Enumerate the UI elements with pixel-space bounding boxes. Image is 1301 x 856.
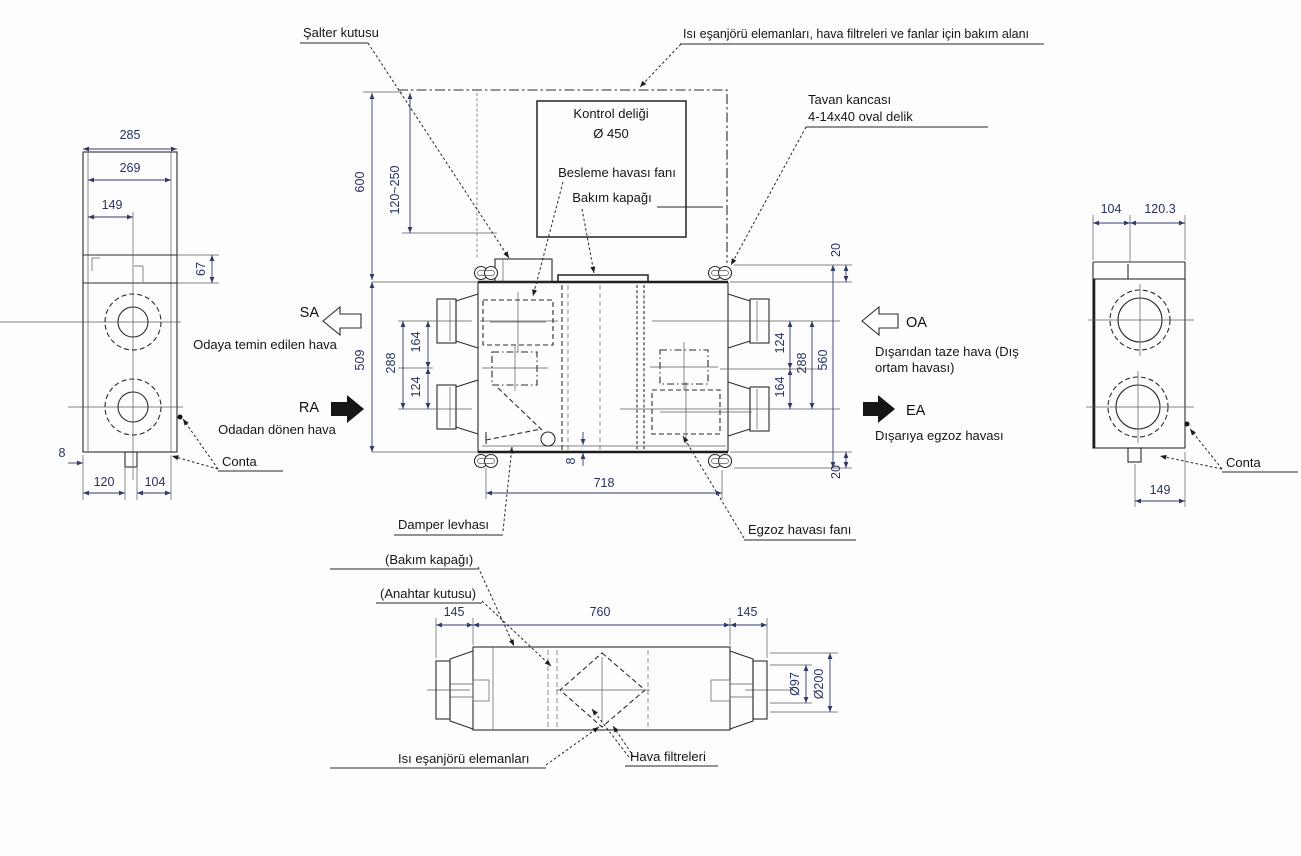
plan-dimensions: 600 120~250 509 288 164 124 20 20 124 bbox=[353, 92, 852, 499]
bottom-tab bbox=[125, 452, 137, 467]
right-view-dimensions: 104 120.3 149 bbox=[1093, 202, 1185, 507]
conta-label-right: Conta bbox=[1226, 455, 1261, 470]
ra-code: RA bbox=[299, 400, 319, 416]
left-view-centerlines bbox=[0, 212, 183, 480]
right-view-ports bbox=[1086, 284, 1194, 443]
oa-description-line1: Dışarıdan taze hava (Dış bbox=[875, 344, 1019, 359]
sa-code: SA bbox=[300, 305, 320, 321]
bottom-centerlines bbox=[427, 657, 793, 723]
left-view-dimensions: 285 269 149 67 8 120 104 bbox=[59, 128, 212, 500]
dim-149: 149 bbox=[102, 198, 123, 212]
damper-plate-line bbox=[498, 388, 542, 430]
dim-164-right: 164 bbox=[773, 377, 787, 398]
switch-box-paren-label: (Anahtar kutusu) bbox=[380, 586, 476, 601]
dim-269: 269 bbox=[120, 161, 141, 175]
exhaust-fan-label: Egzoz havası fanı bbox=[748, 522, 851, 537]
dim-145-left: 145 bbox=[444, 605, 465, 619]
plan-internal-parts bbox=[482, 292, 752, 446]
dim-288-right: 288 bbox=[795, 353, 809, 374]
dim-d200: Ø200 bbox=[812, 669, 826, 700]
dim-120-250: 120~250 bbox=[388, 165, 402, 214]
bottom-tab-right bbox=[1128, 448, 1141, 462]
dim-124-left: 124 bbox=[409, 377, 423, 398]
left-side-view: 285 269 149 67 8 120 104 Conta bbox=[0, 128, 283, 500]
dim-d97: Ø97 bbox=[788, 672, 802, 696]
bottom-view: 145 760 145 Ø97 Ø200 (Bakım kapağı) (Ana… bbox=[330, 552, 838, 768]
ra-description: Odadan dönen hava bbox=[218, 422, 337, 437]
dim-104-right-view: 104 bbox=[1101, 202, 1122, 216]
dim-149-right-view: 149 bbox=[1150, 483, 1171, 497]
hook-top-left bbox=[475, 267, 498, 280]
dim-560: 560 bbox=[816, 350, 830, 371]
control-hole-label: Kontrol deliği bbox=[573, 106, 648, 121]
supply-fan-label: Besleme havası fanı bbox=[558, 165, 676, 180]
dim-120-3: 120.3 bbox=[1144, 202, 1175, 216]
oa-description-line2: ortam havası) bbox=[875, 360, 954, 375]
ra-connector bbox=[456, 380, 478, 434]
dim-288-left: 288 bbox=[384, 353, 398, 374]
airflow-left: SA Odaya temin edilen hava RA Odadan dön… bbox=[193, 305, 364, 437]
dim-718: 718 bbox=[594, 476, 615, 490]
damper-plate-label: Damper levhası bbox=[398, 517, 489, 532]
air-filters-label: Hava filtreleri bbox=[630, 749, 706, 764]
hook-top-right bbox=[709, 267, 732, 280]
ceiling-hook-label: Tavan kancası bbox=[808, 92, 891, 107]
dim-8: 8 bbox=[59, 446, 66, 460]
dim-104: 104 bbox=[145, 475, 166, 489]
airflow-right: OA Dışarıdan taze hava (Dış ortam havası… bbox=[862, 307, 1019, 443]
hook-bottom-right bbox=[709, 455, 732, 468]
dim-164-left: 164 bbox=[409, 332, 423, 353]
motor-box-left bbox=[492, 352, 537, 385]
heat-exchanger-label: Isı eşanjörü elemanları bbox=[398, 751, 530, 766]
drain-hole bbox=[541, 432, 555, 446]
ea-code: EA bbox=[906, 403, 926, 419]
bottom-callouts: (Bakım kapağı) (Anahtar kutusu) Isı eşan… bbox=[330, 552, 718, 768]
conta-label-left: Conta bbox=[222, 454, 257, 469]
dim-509: 509 bbox=[353, 350, 367, 371]
gasket-dot bbox=[178, 415, 183, 420]
technical-drawing-page: 285 269 149 67 8 120 104 Conta SA bbox=[0, 0, 1301, 856]
ceiling-hook-detail: 4-14x40 oval delik bbox=[808, 109, 913, 124]
dim-760: 760 bbox=[590, 605, 611, 619]
maintenance-cover-label: Bakım kapağı bbox=[572, 190, 652, 205]
switch-box bbox=[495, 259, 552, 282]
hrv-dimensional-drawing: 285 269 149 67 8 120 104 Conta SA bbox=[0, 0, 1301, 856]
maintenance-cover-paren-label: (Bakım kapağı) bbox=[385, 552, 473, 567]
dim-20-bottom: 20 bbox=[829, 465, 843, 479]
right-view-outline bbox=[1093, 262, 1190, 462]
right-side-view: 104 120.3 149 Conta bbox=[1086, 202, 1298, 507]
oa-code: OA bbox=[906, 315, 927, 331]
dim-8-plan: 8 bbox=[564, 457, 578, 464]
dim-20-top: 20 bbox=[829, 243, 843, 257]
ea-arrow-icon bbox=[863, 395, 895, 423]
service-area-label: Isı eşanjörü elemanları, hava filtreleri… bbox=[683, 27, 1029, 41]
switch-box-label: Şalter kutusu bbox=[303, 25, 379, 40]
oa-arrow-icon bbox=[862, 307, 898, 335]
hook-bottom-left bbox=[475, 455, 498, 468]
control-hole-diameter: Ø 450 bbox=[593, 126, 628, 141]
dim-285: 285 bbox=[120, 128, 141, 142]
dim-145-right: 145 bbox=[737, 605, 758, 619]
ea-description: Dışarıya egzoz havası bbox=[875, 428, 1004, 443]
dim-600: 600 bbox=[353, 172, 367, 193]
gasket-dot-right bbox=[1185, 422, 1190, 427]
right-view-conta-callout: Conta bbox=[1160, 429, 1298, 472]
ra-arrow-icon bbox=[331, 395, 364, 423]
dim-124-right: 124 bbox=[773, 333, 787, 354]
duct-connectors bbox=[437, 294, 769, 436]
bottom-view-outline bbox=[473, 647, 730, 730]
unit-body-outline bbox=[478, 259, 728, 452]
dim-67: 67 bbox=[194, 262, 208, 276]
sa-arrow-icon bbox=[323, 307, 361, 335]
sa-description: Odaya temin edilen hava bbox=[193, 337, 338, 352]
dim-120: 120 bbox=[94, 475, 115, 489]
plan-view: Kontrol deliği Ø 450 bbox=[300, 25, 1044, 540]
bottom-dimensions: 145 760 145 Ø97 Ø200 bbox=[436, 605, 838, 712]
